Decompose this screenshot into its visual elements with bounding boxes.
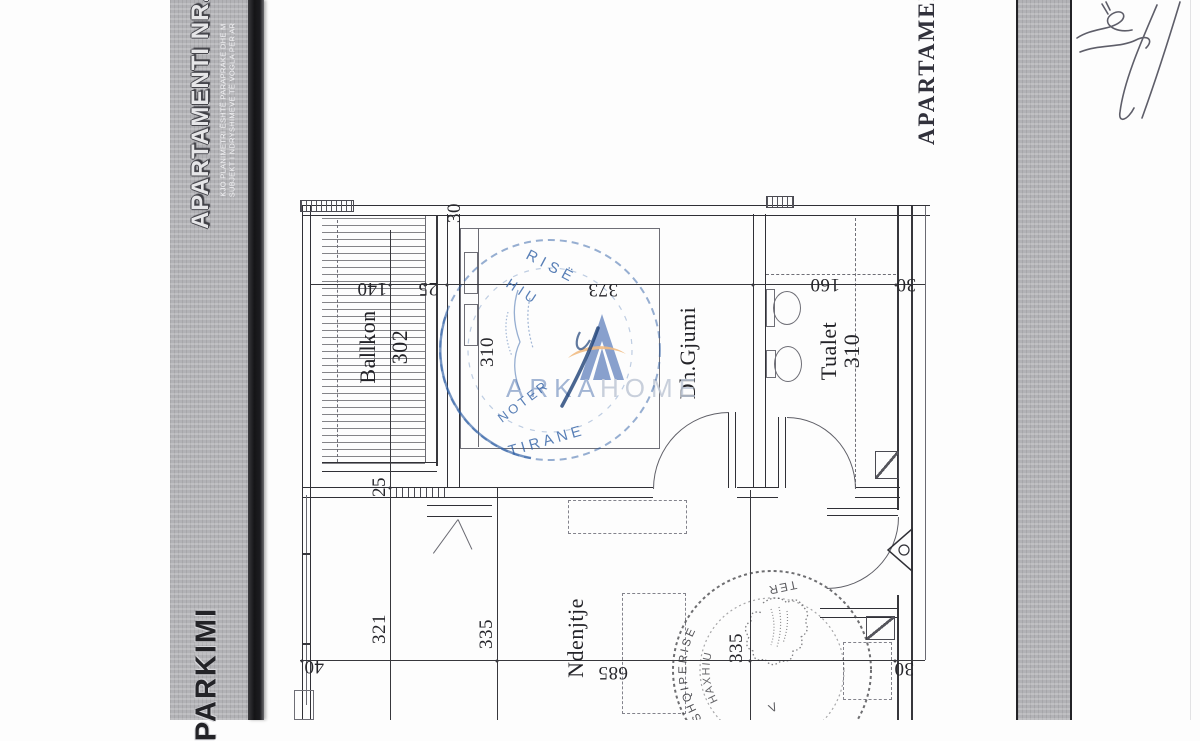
dim-line-vert-2 [497,487,498,720]
window-mullion-2 [303,643,311,645]
dim-label-685: 685 [598,661,628,683]
right-boundary-line [925,206,926,660]
dim-tick [389,284,392,287]
dim-label-30-topright: 30 [896,273,916,295]
room-area-balcony: 302 [387,330,413,365]
window-mullion-1 [303,553,311,555]
entrance-direction-marker [885,527,915,573]
toilet-door-swing-arc [787,417,856,489]
blue-stamp-city-text: TIRANE [506,422,587,460]
toilet-door-leaf [778,417,786,488]
blue-stamp-arc-text: RISË [523,247,580,288]
wall-bedroom-toilet [753,214,766,487]
dim-label-40: 40 [304,655,324,677]
bedroom-door-leaf [728,412,736,488]
mid-wall-window-block [390,487,447,498]
scanned-floor-plan-page: APARTAMENTI NR. KJO PLANIMETRI ËSHTË PAR… [0,0,1200,720]
dim-label-30-bottomright: 30 [894,657,914,679]
blue-stamp-name-text: HIU [503,275,542,308]
entrance-door-leaf [827,508,898,516]
wall-hatch-tab-left [300,200,354,212]
dim-label-160: 160 [810,273,840,295]
grey-stamp-name-text: HAXHIU [701,650,721,705]
dim-tick [496,660,499,663]
balcony-inner-dashed-line [337,220,338,462]
washing-machine [875,451,899,479]
window-sill-step [294,690,314,720]
dim-line-vert-1 [390,230,391,720]
grey-notary-stamp: SHQIPERISE HAXHIU TER V [645,545,880,720]
dim-label-25-balcony: 25 [369,477,391,497]
mid-wall-seg-b [447,487,653,498]
blue-stamp-role-text: NOTER [495,377,552,425]
eagle-emblem-icon [745,598,807,665]
dim-label-321: 321 [369,614,391,644]
tv-stand [427,505,492,517]
room-label-balcony: Ballkon [355,310,381,383]
tv-antenna-line-1 [433,519,458,554]
toilet-bowl [773,291,801,325]
wall-hatch-tab-mid [766,196,794,208]
mid-wall-seg-c [737,487,778,498]
tv-antenna-line-2 [458,519,473,549]
grey-stamp-fragment-text: TER [766,578,798,598]
grey-stamp-initial-text: V [766,700,779,716]
outer-wall-top [302,205,930,216]
room-area-toilet: 310 [839,334,865,369]
dim-label-140: 140 [357,277,387,299]
balcony-rail-inner [425,216,426,462]
mid-wall-seg-d [855,487,900,498]
room-label-living: Ndenjtje [563,598,589,678]
blue-notary-stamp: RISË HIU NOTER TIRANE [430,228,670,473]
dim-label-30-wall: 30 [444,203,466,223]
grey-stamp-country-text: SHQIPERISE [677,625,704,720]
dim-label-335-mid: 335 [476,619,498,649]
balcony-bottom-wall [322,462,437,472]
sink-basin [774,346,802,382]
rug-dashed-outline [568,500,687,534]
dim-tick [752,284,755,287]
